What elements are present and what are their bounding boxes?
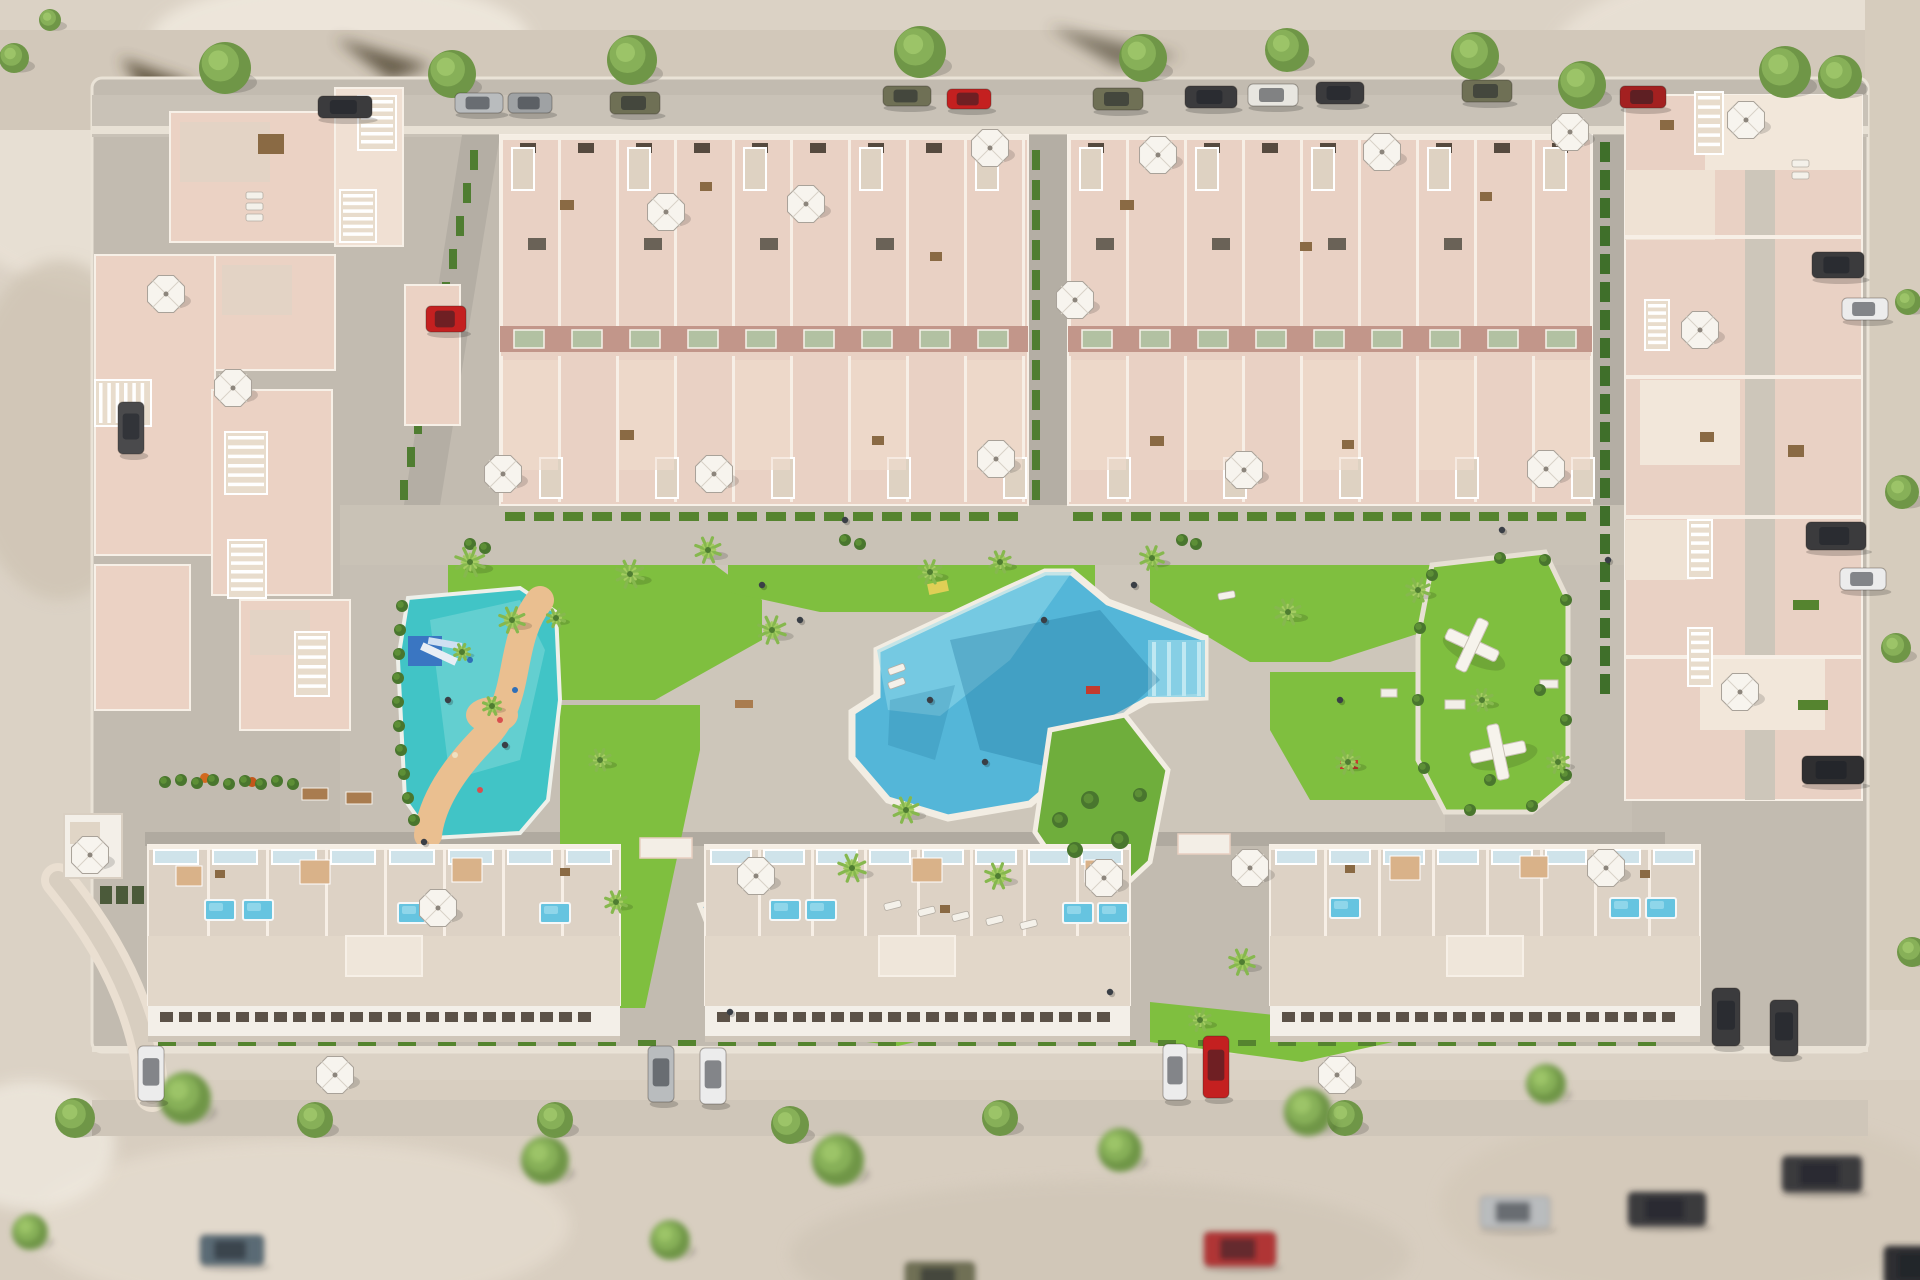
car-glass (1327, 86, 1351, 100)
car-glass (653, 1058, 670, 1086)
dark-fence-plants (116, 886, 128, 904)
stair-ladder (1695, 92, 1723, 154)
shrub (1414, 622, 1426, 634)
stair-step (361, 140, 393, 144)
stair-step (1691, 550, 1709, 554)
tree (1886, 638, 1897, 649)
terrace-wall (207, 848, 210, 936)
facade-window (160, 1012, 173, 1022)
car-glass (1800, 1162, 1840, 1185)
front-hedge (1305, 512, 1325, 521)
tree (903, 34, 923, 54)
facade-window (572, 330, 602, 348)
stair-step (1691, 649, 1709, 653)
stair-step (228, 455, 264, 459)
roof-door (926, 143, 942, 153)
lane-hedge (1600, 282, 1610, 302)
shrub (1526, 800, 1538, 812)
facade-window (293, 1012, 306, 1022)
front-hedge (563, 512, 583, 521)
tree (208, 50, 228, 70)
car-glass (1495, 1202, 1530, 1222)
facade-window (236, 1012, 249, 1022)
car-glass (621, 96, 646, 110)
private-pool (1646, 898, 1676, 918)
facade-window (1546, 330, 1576, 348)
front-hedge (1537, 512, 1557, 521)
umbrella-pole (1604, 866, 1609, 871)
shrub (393, 648, 405, 660)
roof-furniture (258, 134, 284, 154)
facade-window (1301, 1012, 1314, 1022)
lane-hedge (1032, 450, 1040, 470)
party-wall (1358, 140, 1361, 326)
facade-window (793, 1012, 806, 1022)
shrub (480, 543, 487, 550)
car (1316, 82, 1369, 110)
palm-crown (1149, 555, 1155, 561)
front-hedge (1102, 512, 1122, 521)
umbrella-pole (88, 853, 93, 858)
shrub (854, 538, 866, 550)
palm-crown (849, 865, 855, 871)
car (1462, 80, 1518, 108)
lane-hedge (463, 183, 471, 203)
party-wall (1184, 356, 1187, 502)
person (445, 697, 451, 703)
lane-hedge (1600, 170, 1610, 190)
shrub (191, 777, 203, 789)
party-wall (1022, 140, 1025, 326)
person (982, 759, 988, 765)
roof-bulkhead (346, 936, 422, 976)
shrub (394, 649, 401, 656)
car-glass (894, 90, 918, 103)
shrub (1527, 801, 1534, 808)
facade-window (217, 1012, 230, 1022)
glass-balustrade (567, 850, 611, 864)
private-pool (205, 900, 235, 920)
stair-step (298, 684, 326, 688)
stair-step (99, 383, 103, 423)
apartment-block (95, 565, 190, 710)
front-hedge (708, 512, 728, 521)
car-glass (466, 97, 490, 110)
tree (543, 1108, 557, 1122)
shrub (1560, 594, 1572, 606)
palm-crown (509, 617, 515, 623)
facade-window (483, 1012, 496, 1022)
facade-window (312, 1012, 325, 1022)
glass-balustrade (331, 850, 375, 864)
terrace-furniture (1120, 200, 1134, 210)
facade-window (521, 1012, 534, 1022)
facade-window (255, 1012, 268, 1022)
facade-window (907, 1012, 920, 1022)
person (502, 742, 508, 748)
palm-crown (1479, 697, 1485, 703)
palm-crown (1555, 759, 1561, 765)
lane-hedge (456, 216, 464, 236)
front-hedge (621, 512, 641, 521)
sun-lounger (1792, 160, 1809, 167)
lane-hedge (1600, 394, 1610, 414)
car-glass (1775, 1012, 1793, 1040)
glass-balustrade (1276, 850, 1316, 864)
stair-step (231, 570, 263, 574)
lane-hedge (1032, 300, 1040, 320)
private-pool-water (1614, 901, 1628, 909)
car (1812, 252, 1870, 284)
person (1131, 582, 1137, 588)
lane-hedge (1032, 360, 1040, 380)
car-glass (1816, 761, 1847, 779)
shrub (394, 624, 406, 636)
car (610, 92, 666, 120)
front-hedge (1334, 512, 1354, 521)
umbrella-pole (1242, 468, 1247, 473)
shrub (394, 721, 401, 728)
shrub (1081, 791, 1099, 809)
bottom-sidewalk (92, 1100, 1868, 1136)
front-hedge (998, 512, 1018, 521)
car (700, 1048, 730, 1110)
car (1781, 1156, 1869, 1198)
party-wall (674, 140, 677, 326)
pool-step (1152, 642, 1156, 696)
shrub (1177, 535, 1184, 542)
umbrella-pole (754, 874, 759, 879)
wood-bench (735, 700, 753, 708)
ac-unit (528, 238, 546, 250)
umbrella-pole (1380, 150, 1385, 155)
front-hedge (1073, 512, 1093, 521)
stair-ladder (1645, 300, 1669, 350)
facade-window (1643, 1012, 1656, 1022)
shrub (397, 601, 404, 608)
terrace-wall (811, 848, 814, 936)
car (1840, 568, 1891, 596)
stair-bulkhead (744, 148, 766, 190)
facade-window (945, 1012, 958, 1022)
splash-figure (452, 752, 458, 758)
facade-window (983, 1012, 996, 1022)
umbrella-pole (804, 202, 809, 207)
stair-step (228, 445, 264, 449)
glass-balustrade (1546, 850, 1586, 864)
car-glass (1630, 90, 1653, 104)
tree (821, 1142, 841, 1162)
facade-window (274, 1012, 287, 1022)
facade-window (1059, 1012, 1072, 1022)
parapet (500, 135, 1028, 140)
facade-window (407, 1012, 420, 1022)
shrub (395, 744, 407, 756)
shrub (192, 778, 199, 785)
palm-crown (995, 873, 1001, 879)
roof-pergola (300, 860, 330, 884)
palm-crown (627, 571, 633, 577)
terrace-furniture (620, 430, 634, 440)
lane-hedge (400, 480, 408, 500)
lane-hedge (1032, 240, 1040, 260)
splash-figure (512, 687, 518, 693)
shrub (1465, 805, 1472, 812)
lane-hedge (1600, 226, 1610, 246)
stair-bulkhead (628, 148, 650, 190)
shrub (1418, 762, 1430, 774)
private-pool-water (1650, 901, 1664, 909)
lane-hedge (1600, 310, 1610, 330)
lane-hedge (1600, 338, 1610, 358)
car-glass (1259, 88, 1284, 102)
stair-step (1691, 533, 1709, 537)
car (1770, 1000, 1802, 1062)
shrub (1133, 788, 1147, 802)
stair-step (1648, 304, 1666, 308)
red-game-table (1086, 686, 1100, 694)
terrace-furniture (1788, 445, 1804, 457)
shrub (1427, 570, 1434, 577)
stair-bulkhead (1196, 148, 1218, 190)
umbrella-pole (1568, 130, 1573, 135)
stair-bulkhead (860, 148, 882, 190)
terrace-wall (266, 848, 269, 936)
terrace-furniture (930, 252, 942, 261)
tree (1826, 62, 1843, 79)
stair-step (1691, 559, 1709, 563)
picnic-table (302, 788, 328, 800)
facade-window (1529, 1012, 1542, 1022)
tree (530, 1144, 548, 1162)
roof-bulkhead (1447, 936, 1523, 976)
stair-step (1691, 675, 1709, 679)
front-hedge (592, 512, 612, 521)
car (1203, 1036, 1233, 1104)
facade-hedge (1238, 1040, 1256, 1046)
garden-bench (1445, 700, 1465, 709)
shrub (160, 777, 167, 784)
stair-step (231, 561, 263, 565)
facade-window (926, 1012, 939, 1022)
shrub (1426, 569, 1438, 581)
shrub (1114, 834, 1124, 844)
shrub (1054, 814, 1063, 823)
facade-base (1270, 1036, 1700, 1042)
car (1163, 1044, 1191, 1106)
party-wall (790, 140, 793, 326)
facade-window (502, 1012, 515, 1022)
facade-hedge (678, 1040, 696, 1046)
tree (437, 58, 455, 76)
lane-hedge (1032, 180, 1040, 200)
shrub (1084, 794, 1094, 804)
roof-pergola (176, 866, 202, 886)
parapet (1068, 135, 1592, 140)
glass-balustrade (508, 850, 552, 864)
front-hedge (1392, 512, 1412, 521)
terrace-furniture (872, 436, 884, 445)
stair-step (343, 209, 373, 213)
shrub (1534, 684, 1546, 696)
front-hedge (1566, 512, 1586, 521)
facade-window (869, 1012, 882, 1022)
pool-step (1167, 642, 1171, 696)
tree (1273, 35, 1290, 52)
party-wall (848, 356, 851, 502)
facade-window (964, 1012, 977, 1022)
facade-window (804, 330, 834, 348)
stair-step (231, 544, 263, 548)
party-wall (732, 140, 735, 326)
front-hedge (737, 512, 757, 521)
shrub (175, 774, 187, 786)
shrub (256, 779, 263, 786)
person (727, 1009, 733, 1015)
roof-pergola (912, 858, 942, 882)
stair-step (298, 665, 326, 669)
terrace-furniture (560, 200, 574, 210)
shrub (224, 779, 231, 786)
person (797, 617, 803, 623)
villa-divider (1625, 515, 1862, 519)
facade-window (1198, 330, 1228, 348)
umbrella-pole (501, 472, 506, 477)
shrub (840, 535, 847, 542)
facade-window (1453, 1012, 1466, 1022)
stair-step (1698, 96, 1720, 100)
front-hedge (969, 512, 989, 521)
private-pool-water (402, 906, 416, 914)
stair-bulkhead (1428, 148, 1450, 190)
umbrella-pole (231, 386, 236, 391)
shrub (1415, 623, 1422, 630)
shrub (839, 534, 851, 546)
stair-step (228, 436, 264, 440)
car (426, 306, 471, 338)
terrace-furniture (1150, 436, 1164, 446)
party-wall (616, 140, 619, 326)
sun-lounger (1792, 172, 1809, 179)
private-pool (806, 900, 836, 920)
facade-window (1140, 330, 1170, 348)
front-hedge (882, 512, 902, 521)
stair-step (298, 655, 326, 659)
glass-balustrade (1330, 850, 1370, 864)
garden-bench (1381, 689, 1397, 697)
shrub (465, 539, 472, 546)
front-hedge (679, 512, 699, 521)
facade-window (1430, 330, 1460, 348)
facade-window (350, 1012, 363, 1022)
shrub (1485, 775, 1492, 782)
terrace-furniture (1660, 120, 1674, 130)
shrub (393, 720, 405, 732)
dark-fence-plants (100, 886, 112, 904)
car-glass (1850, 572, 1873, 586)
shrub (1067, 842, 1083, 858)
car-glass (1819, 527, 1849, 545)
person (927, 697, 933, 703)
terrace-furniture (560, 868, 570, 876)
stair-step (1698, 143, 1720, 147)
villa-divider (1625, 655, 1862, 659)
villa-roof (1625, 170, 1715, 240)
stair-step (1698, 105, 1720, 109)
lane-hedge (1600, 254, 1610, 274)
car (947, 89, 996, 115)
car (1203, 1232, 1282, 1272)
facade-window (1415, 1012, 1428, 1022)
facade-window (559, 1012, 572, 1022)
party-wall (616, 356, 619, 502)
car (1185, 86, 1243, 114)
stair-step (1691, 658, 1709, 662)
car-glass (1898, 1253, 1920, 1279)
sun-lounger (246, 214, 263, 221)
aerial-render-canvas (0, 0, 1920, 1280)
dark-fence-plants (132, 886, 144, 904)
front-hedge (766, 512, 786, 521)
car-glass (214, 1240, 246, 1259)
private-pool-water (774, 903, 788, 911)
lane-hedge (1600, 422, 1610, 442)
pool-steps-area (1148, 640, 1205, 697)
bottom-curb (92, 1046, 1868, 1052)
stair-step (231, 553, 263, 557)
tree (1106, 1135, 1123, 1152)
service-band (145, 832, 1665, 846)
car (1627, 1192, 1713, 1232)
tree (1533, 1070, 1548, 1085)
palm-crown (1197, 1017, 1203, 1023)
facade-window (862, 330, 892, 348)
stair-step (1691, 667, 1709, 671)
terrace-wall (502, 848, 505, 936)
car (1093, 88, 1149, 116)
stair-step (1698, 124, 1720, 128)
stair-step (1648, 319, 1666, 323)
palm-crown (927, 569, 933, 575)
shrub (479, 542, 491, 554)
shrub (1539, 554, 1551, 566)
facade-window (369, 1012, 382, 1022)
facade-window (388, 1012, 401, 1022)
stair-step (231, 579, 263, 583)
car (118, 402, 148, 460)
stair-step (1691, 641, 1709, 645)
shrub (240, 776, 247, 783)
stair-ladder (295, 632, 329, 696)
party-wall (1300, 356, 1303, 502)
private-pool (1063, 903, 1093, 923)
facade-window (426, 1012, 439, 1022)
lane-hedge (1600, 562, 1610, 582)
stair-step (228, 473, 264, 477)
palm-crown (489, 703, 495, 709)
car (200, 1235, 270, 1271)
lane-hedge (1600, 534, 1610, 554)
shrub (402, 792, 414, 804)
front-hedge (853, 512, 873, 521)
party-wall (964, 356, 967, 502)
shrub (409, 815, 416, 822)
stair-step (1691, 632, 1709, 636)
facade-window (179, 1012, 192, 1022)
umbrella-pole (1156, 153, 1161, 158)
facade-window (1472, 1012, 1485, 1022)
private-pool (243, 900, 273, 920)
